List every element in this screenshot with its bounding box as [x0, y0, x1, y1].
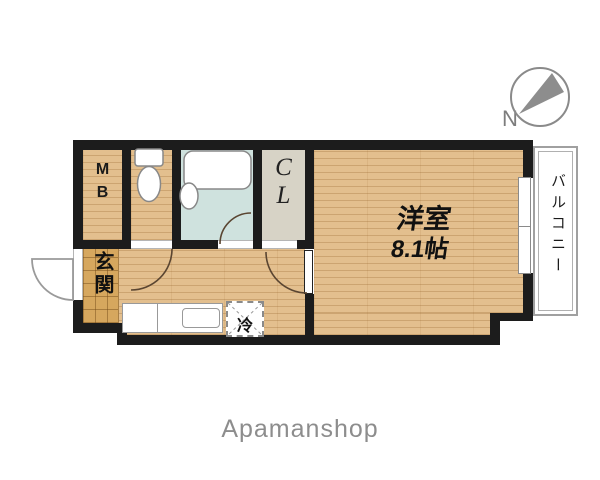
- floorplan-canvas: バルコニー 冷 M B C L 玄: [0, 0, 600, 480]
- wall-right-lower: [523, 273, 533, 321]
- bath-doorway: [218, 240, 253, 249]
- wall-band-closet-right: [297, 240, 314, 249]
- wall-toilet-bath: [172, 150, 181, 240]
- kitchen-sink: [182, 308, 220, 328]
- balcony-label: バルコニー: [547, 173, 568, 313]
- bathroom-floor: [181, 150, 253, 240]
- compass-north-label: N: [502, 106, 518, 132]
- wall-hall-main-lower: [305, 294, 314, 345]
- wall-mb-toilet: [122, 150, 131, 240]
- brand-logo-text: Apamanshop: [0, 415, 600, 444]
- wall-band-bath-right: [253, 240, 262, 249]
- refrigerator-box: 冷: [226, 301, 264, 337]
- wall-right-upper: [523, 140, 533, 178]
- compass-needle-icon: [519, 73, 564, 114]
- toilet-doorway: [131, 240, 172, 249]
- main-room-floor-lower: [314, 313, 490, 335]
- meter-box-label: M B: [83, 158, 122, 204]
- counter-divider-line: [157, 304, 158, 332]
- compass-circle: [511, 68, 569, 126]
- toilet-floor: [131, 150, 172, 240]
- wall-bath-closet: [253, 150, 262, 240]
- wall-band-mb: [83, 240, 131, 249]
- balcony-window: [518, 177, 531, 274]
- closet-sliding-door: [262, 240, 297, 249]
- main-room-door-leaf: [304, 250, 313, 294]
- entrance-doorway: [73, 249, 83, 300]
- wall-band-bath-left: [172, 240, 218, 249]
- main-room-size: 8.1帖: [348, 236, 492, 264]
- wall-closet-main: [305, 150, 314, 249]
- kitchen-counter: [122, 303, 223, 333]
- closet-label: C L: [262, 154, 305, 210]
- entrance-step-line: [118, 249, 119, 323]
- main-room-name: 洋室: [352, 203, 497, 236]
- main-room-label: 洋室 8.1帖: [348, 203, 497, 264]
- window-divider: [519, 226, 530, 227]
- refrigerator-label: 冷: [228, 312, 262, 336]
- entrance-label: 玄関: [88, 251, 117, 311]
- wall-left-upper: [73, 140, 83, 249]
- wall-top: [73, 140, 533, 150]
- entrance-door-arc: [32, 259, 73, 300]
